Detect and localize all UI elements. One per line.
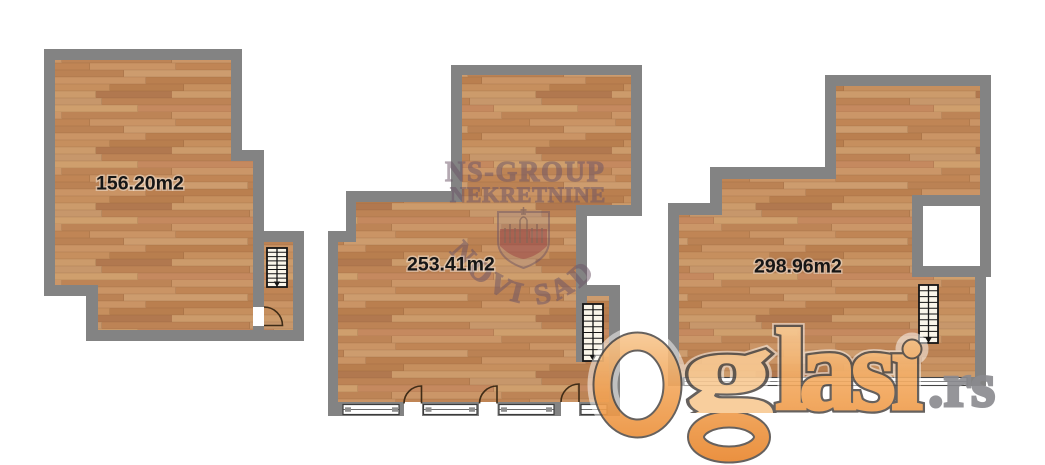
svg-text:a: a — [799, 307, 857, 434]
svg-text:NEKRETNINE: NEKRETNINE — [450, 182, 606, 207]
svg-text:ı: ı — [891, 307, 923, 434]
svg-text:298.96m2: 298.96m2 — [754, 256, 842, 278]
svg-text:156.20m2: 156.20m2 — [96, 173, 184, 195]
svg-text:253.41m2: 253.41m2 — [407, 254, 495, 276]
svg-text:.rs: .rs — [928, 352, 995, 420]
svg-text:s: s — [851, 307, 896, 434]
